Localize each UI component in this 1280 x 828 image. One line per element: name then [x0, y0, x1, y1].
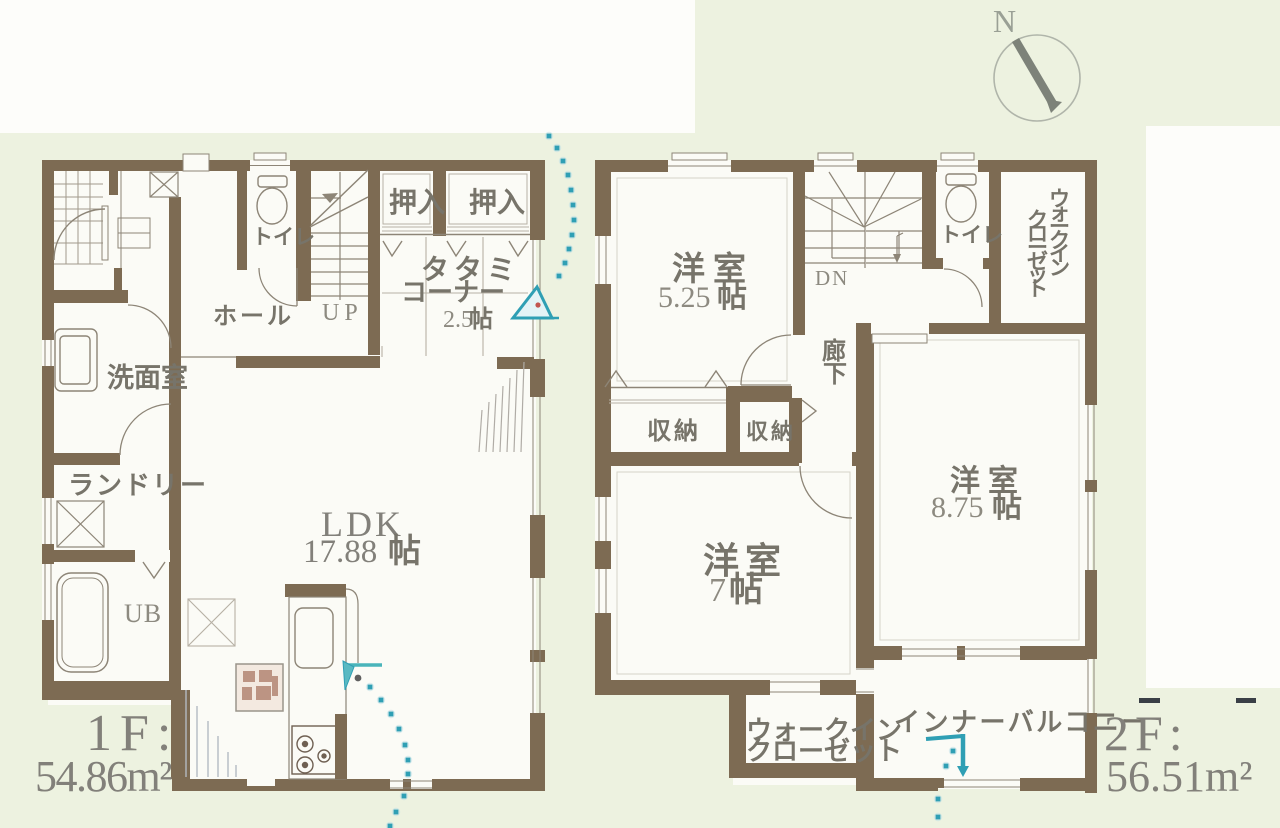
svg-text:収納: 収納 [647, 417, 701, 445]
svg-text:7: 7 [709, 572, 726, 609]
svg-text:コーナー: コーナー [401, 277, 505, 307]
svg-text:収納: 収納 [746, 419, 796, 444]
svg-text:ホール: ホール [213, 303, 294, 330]
svg-text:5.25: 5.25 [658, 281, 711, 314]
svg-text:帖: 帖 [388, 532, 421, 569]
svg-text:UP: UP [322, 300, 363, 326]
svg-text:DN: DN [815, 266, 849, 290]
svg-text:N: N [993, 3, 1016, 39]
svg-text:UB: UB [124, 599, 162, 628]
svg-text:帖: 帖 [717, 281, 747, 314]
svg-text:トイレ: トイレ [252, 226, 315, 249]
svg-text:8.75: 8.75 [931, 491, 984, 524]
svg-text:洗面室: 洗面室 [107, 362, 188, 393]
svg-text:56.51m²: 56.51m² [1106, 752, 1252, 801]
svg-text:押入: 押入 [469, 186, 525, 218]
svg-text:押入: 押入 [389, 186, 445, 218]
svg-text:クローゼット: クローゼット [746, 736, 902, 766]
svg-text:トイレ: トイレ [940, 224, 1003, 247]
svg-text:帖: 帖 [469, 306, 493, 333]
svg-text:ランドリー: ランドリー [68, 470, 208, 500]
svg-text:ト: ト [1027, 278, 1048, 301]
svg-text:ン: ン [1049, 257, 1070, 280]
svg-text:54.86m²: 54.86m² [35, 752, 172, 801]
svg-text:帖: 帖 [729, 571, 763, 609]
svg-text:17.88: 17.88 [303, 534, 377, 570]
svg-text:下: 下 [823, 361, 847, 388]
svg-text:帖: 帖 [992, 491, 1022, 524]
